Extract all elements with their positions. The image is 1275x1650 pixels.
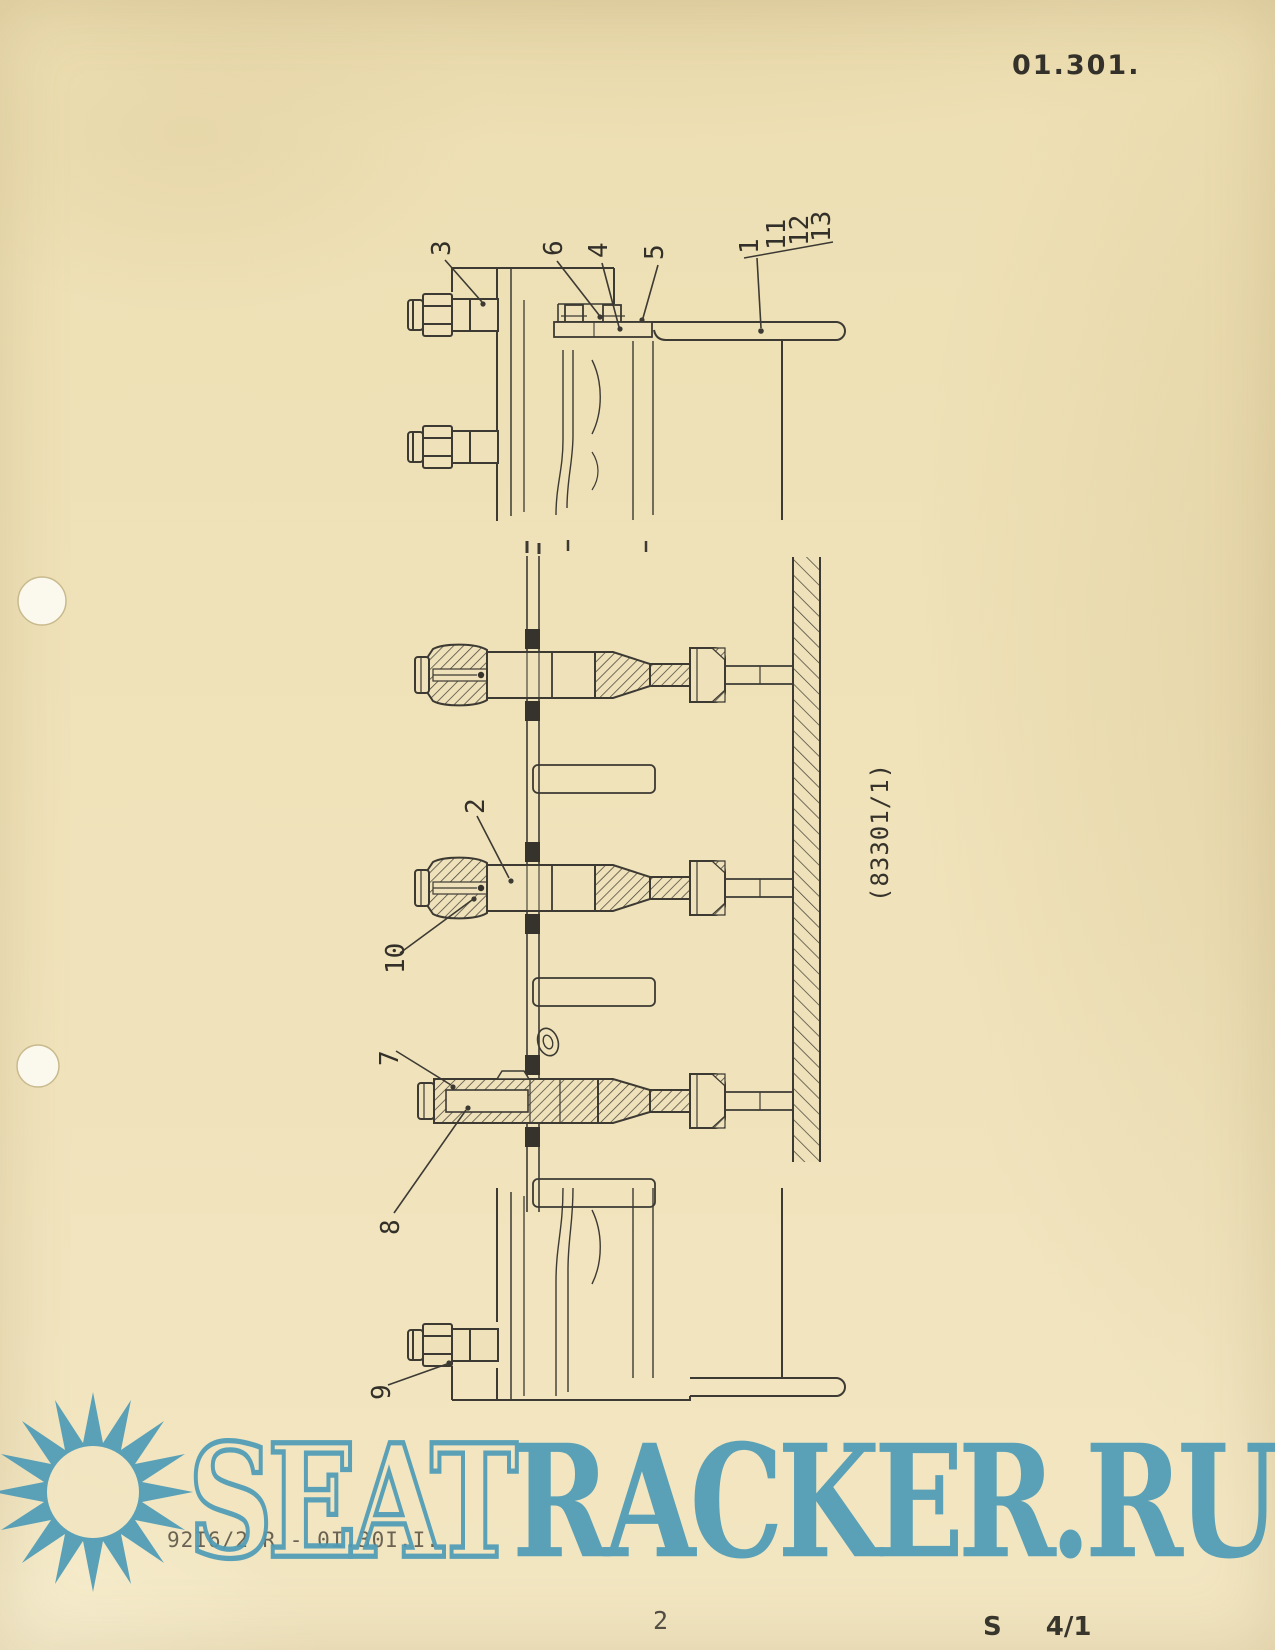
watermark: SEATRACKER.RU (0, 1392, 1275, 1593)
oil-hole-spiral (534, 1026, 562, 1059)
punch-holes (17, 577, 66, 1087)
watermark-text: SEATRACKER.RU (188, 1410, 1275, 1594)
scanned-manual-page: 01.301. 92I6/2 R - 0I.30I.I. 2 S 4/1 (0, 0, 1275, 1650)
sheet-number: 4/1 (1046, 1612, 1092, 1642)
callout-9: 9 (367, 1384, 397, 1400)
tappet-row-2 (415, 842, 794, 934)
tappet-row-1 (415, 629, 794, 721)
callout-11: 11 (762, 219, 792, 250)
cylinder-head-bottom-section (408, 1188, 845, 1400)
callout-12: 12 (785, 215, 815, 246)
guide-plate (527, 540, 646, 1212)
callout-numbers: 3 6 4 5 1 11 12 13 2 10 7 8 9 (367, 211, 837, 1400)
tappet-row-3-adjuster (418, 1055, 794, 1147)
sun-logo (0, 1392, 193, 1592)
guide-slots (533, 765, 655, 1207)
callout-8: 8 (376, 1219, 406, 1235)
callout-leaders (388, 242, 833, 1385)
sheet-reference: S 4/1 (983, 1612, 1091, 1642)
callout-5: 5 (640, 244, 670, 260)
watermark-text-solid: RACKER.RU (512, 1410, 1275, 1594)
crankcase-wall (793, 557, 820, 1162)
callout-10: 10 (381, 943, 411, 974)
page-number: 2 (653, 1606, 668, 1635)
head-bolt-lower (408, 426, 498, 468)
technical-diagram: 3 6 4 5 1 11 12 13 2 10 7 8 9 (83301/1) … (0, 0, 1275, 1650)
callout-3: 3 (427, 240, 457, 256)
cylinder-head-top-section (408, 268, 845, 521)
figure-reference: (83301/1) (866, 763, 894, 902)
footer-part-code: 92I6/2 R - 0I.30I.I. (167, 1528, 440, 1552)
document-code: 01.301. (1012, 50, 1140, 81)
sheet-letter: S (983, 1612, 1002, 1642)
callout-6: 6 (539, 240, 569, 256)
head-bolt-upper (408, 294, 498, 336)
watermark-text-outline: SEAT (188, 1410, 517, 1594)
head-bolt-bottom (408, 1324, 498, 1366)
callout-1: 1 (735, 238, 765, 254)
callout-7: 7 (375, 1050, 405, 1066)
callout-2: 2 (461, 798, 491, 814)
callout-13: 13 (807, 211, 837, 242)
callout-4: 4 (584, 242, 614, 258)
